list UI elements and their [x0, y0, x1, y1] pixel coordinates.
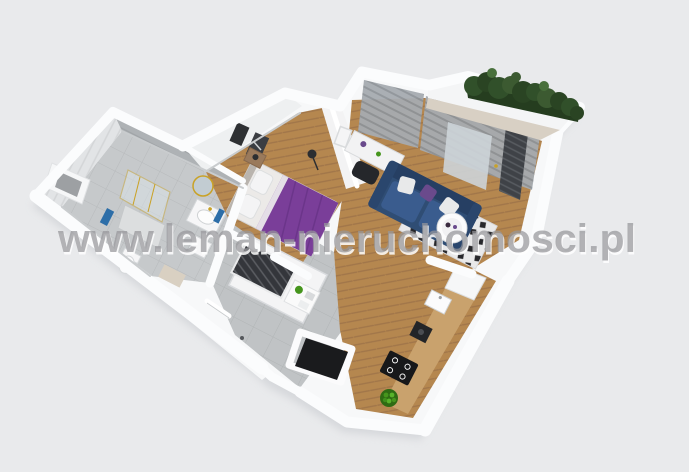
watermark: www.leman-nieruchomosci.pl www.leman-nie… [57, 217, 637, 264]
door-mark [240, 336, 244, 340]
floorplan-3d-render: www.leman-nieruchomosci.pl www.leman-nie… [0, 0, 689, 472]
watermark-text: www.leman-nieruchomosci.pl [57, 217, 636, 261]
door-handle [494, 164, 498, 168]
screenshot-canvas: www.leman-nieruchomosci.pl www.leman-nie… [0, 0, 689, 472]
fruit-bowl [380, 389, 398, 407]
bathroom-mirror [193, 176, 213, 196]
